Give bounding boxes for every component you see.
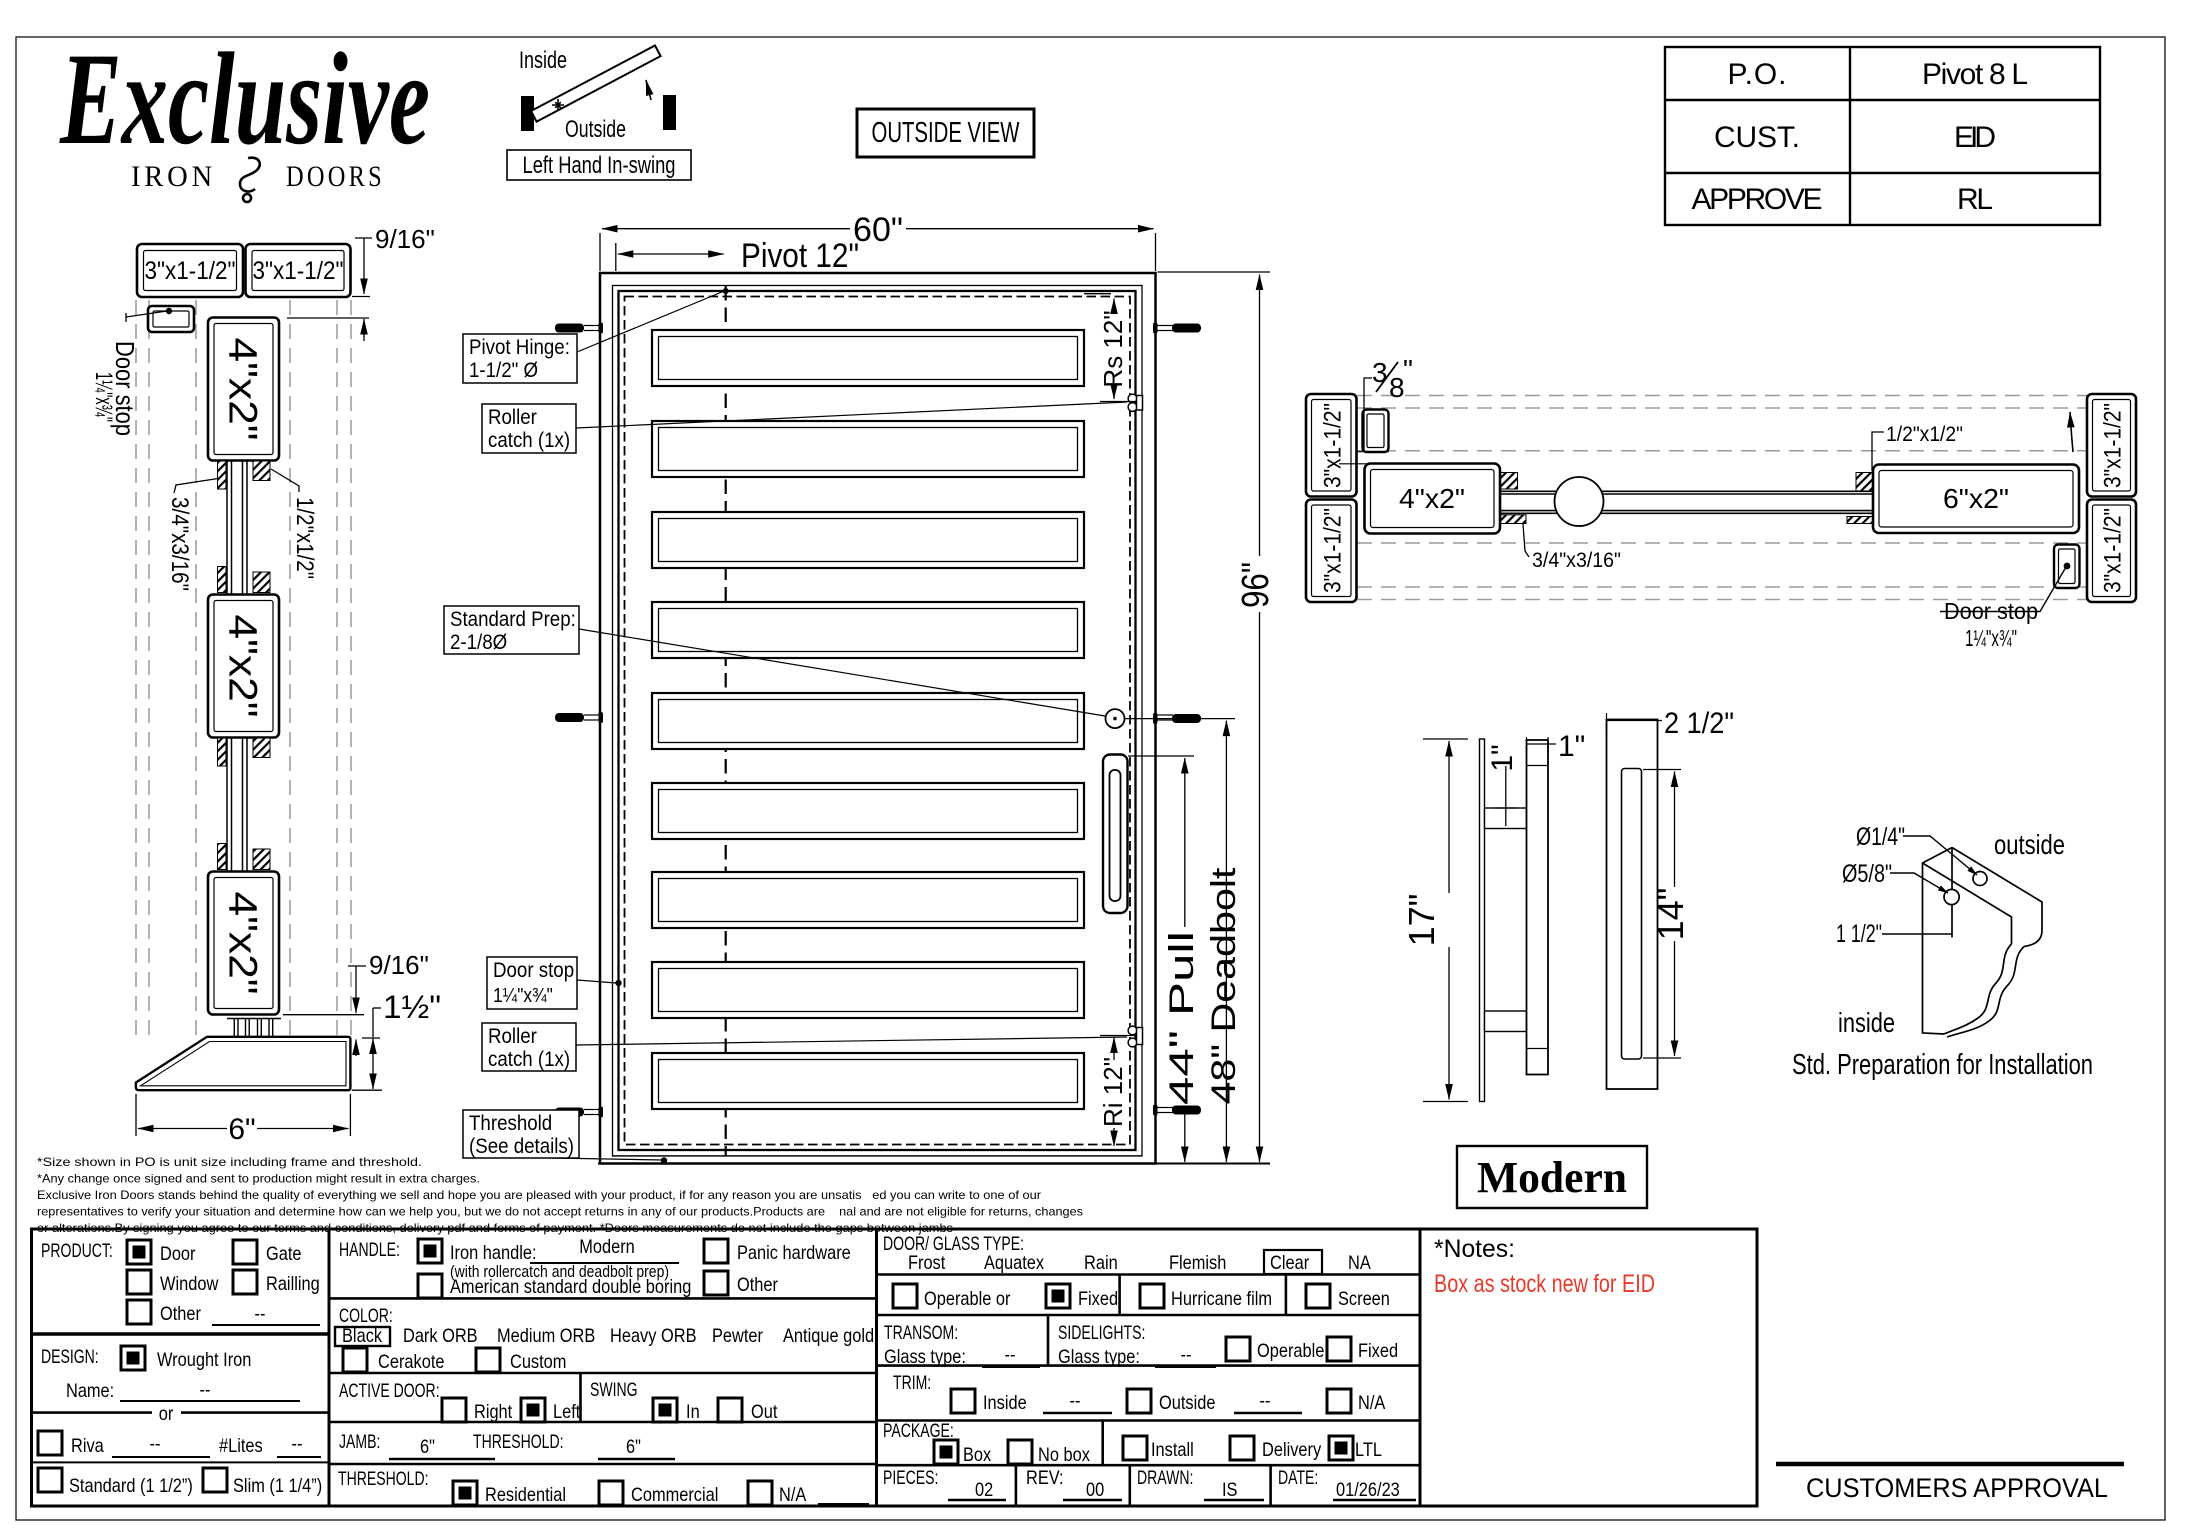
svg-text:6": 6" bbox=[228, 1113, 255, 1146]
svg-text:Black: Black bbox=[342, 1325, 382, 1347]
svg-text:": " bbox=[1403, 354, 1413, 385]
svg-text:Glass type:: Glass type: bbox=[884, 1346, 966, 1368]
svg-text:Heavy ORB: Heavy ORB bbox=[610, 1325, 697, 1347]
svg-text:3"x1-1/2": 3"x1-1/2" bbox=[1320, 403, 1347, 488]
svg-text:1½": 1½" bbox=[383, 989, 441, 1025]
svg-text:THRESHOLD:: THRESHOLD: bbox=[338, 1468, 429, 1490]
svg-text:Window: Window bbox=[160, 1273, 219, 1295]
svg-text:Modern: Modern bbox=[1477, 1153, 1627, 1202]
svg-text:APPROVE: APPROVE bbox=[1692, 183, 1823, 216]
svg-text:outside: outside bbox=[1994, 829, 2065, 860]
svg-text:HANDLE:: HANDLE: bbox=[339, 1239, 400, 1261]
svg-text:Std. Preparation for Installat: Std. Preparation for Installation bbox=[1792, 1049, 2093, 1081]
svg-text:4"x2": 4"x2" bbox=[221, 892, 265, 995]
svg-text:Pivot 12": Pivot 12" bbox=[741, 237, 859, 275]
svg-text:96": 96" bbox=[1235, 562, 1277, 608]
svg-text:Glass type:: Glass type: bbox=[1058, 1346, 1140, 1368]
svg-text:17": 17" bbox=[1401, 894, 1442, 947]
svg-text:Door stop: Door stop bbox=[1944, 598, 2038, 624]
svg-text:Door stop: Door stop bbox=[493, 958, 574, 982]
svg-text:3"x1-1/2": 3"x1-1/2" bbox=[2100, 403, 2127, 488]
svg-text:Flemish: Flemish bbox=[1169, 1252, 1226, 1274]
svg-text:Left Hand In-swing: Left Hand In-swing bbox=[523, 152, 676, 179]
svg-text:Exclusive: Exclusive bbox=[59, 25, 430, 172]
svg-text:Riva: Riva bbox=[71, 1435, 104, 1457]
svg-text:3: 3 bbox=[1372, 357, 1388, 388]
svg-text:DESIGN:: DESIGN: bbox=[41, 1346, 99, 1368]
svg-text:9/16": 9/16" bbox=[369, 950, 429, 980]
svg-text:EID: EID bbox=[1954, 121, 1996, 154]
svg-text:Door: Door bbox=[160, 1243, 196, 1265]
svg-text:3"x1-1/2": 3"x1-1/2" bbox=[145, 257, 236, 285]
svg-text:1/2"x1/2": 1/2"x1/2" bbox=[291, 497, 318, 579]
svg-text:9/16": 9/16" bbox=[375, 224, 435, 254]
svg-text:*Size shown in PO is unit size: *Size shown in PO is unit size including… bbox=[37, 1155, 422, 1169]
svg-text:Other: Other bbox=[737, 1274, 778, 1296]
svg-text:Ø5/8": Ø5/8" bbox=[1842, 860, 1892, 888]
svg-text:Panic hardware: Panic hardware bbox=[737, 1242, 851, 1264]
svg-text:--: -- bbox=[1181, 1344, 1192, 1366]
svg-text:IS: IS bbox=[1222, 1479, 1238, 1501]
svg-text:1 1/2": 1 1/2" bbox=[1836, 920, 1882, 948]
svg-text:inside: inside bbox=[1838, 1007, 1895, 1038]
svg-text:In: In bbox=[686, 1401, 700, 1423]
svg-text:4"x2": 4"x2" bbox=[1399, 483, 1465, 514]
svg-text:Hurricane film: Hurricane film bbox=[1171, 1288, 1272, 1310]
svg-text:RL: RL bbox=[1957, 183, 1993, 216]
svg-text:48" Deadbolt: 48" Deadbolt bbox=[1205, 867, 1243, 1105]
svg-text:3/4"x3/16": 3/4"x3/16" bbox=[1532, 549, 1621, 572]
svg-text:--: -- bbox=[1070, 1390, 1081, 1412]
svg-text:Install: Install bbox=[1151, 1439, 1194, 1461]
svg-text:00: 00 bbox=[1086, 1479, 1104, 1501]
svg-text:Threshold: Threshold bbox=[469, 1111, 552, 1135]
svg-text:TRIM:: TRIM: bbox=[893, 1372, 931, 1394]
svg-text:Right: Right bbox=[474, 1401, 513, 1423]
svg-text:Box as stock new for EID: Box as stock new for EID bbox=[1434, 1270, 1655, 1298]
svg-text:--: -- bbox=[292, 1433, 303, 1455]
svg-text:PIECES:: PIECES: bbox=[883, 1467, 938, 1489]
svg-text:6"x2": 6"x2" bbox=[1943, 483, 2009, 514]
svg-text:Standard Prep:: Standard Prep: bbox=[450, 607, 576, 631]
svg-text:Fixed: Fixed bbox=[1078, 1288, 1118, 1310]
svg-text:3"x1-1/2": 3"x1-1/2" bbox=[1320, 508, 1347, 593]
svg-text:01/26/23: 01/26/23 bbox=[1336, 1479, 1400, 1501]
svg-text:1¼"x¾": 1¼"x¾" bbox=[90, 372, 117, 422]
svg-text:Fixed: Fixed bbox=[1358, 1340, 1398, 1362]
svg-text:14": 14" bbox=[1650, 888, 1691, 941]
svg-text:Outside: Outside bbox=[1159, 1392, 1216, 1414]
svg-text:2-1/8Ø: 2-1/8Ø bbox=[450, 630, 507, 654]
svg-text:Modern: Modern bbox=[579, 1236, 635, 1258]
svg-text:1¼"x¾": 1¼"x¾" bbox=[493, 985, 553, 1007]
svg-text:Roller: Roller bbox=[488, 405, 537, 429]
svg-text:--: -- bbox=[1260, 1390, 1271, 1412]
svg-text:4"x2": 4"x2" bbox=[221, 615, 265, 718]
svg-text:Box: Box bbox=[963, 1444, 991, 1466]
svg-text:CUST.: CUST. bbox=[1714, 121, 1800, 154]
svg-text:American standard double borin: American standard double boring bbox=[450, 1276, 691, 1298]
svg-text:Pivot 8 L: Pivot 8 L bbox=[1922, 58, 2028, 91]
svg-text:Outside: Outside bbox=[565, 116, 626, 143]
svg-text:IRON: IRON bbox=[131, 160, 216, 193]
svg-text:--: -- bbox=[150, 1433, 161, 1455]
svg-text:Iron handle:: Iron handle: bbox=[450, 1242, 537, 1264]
svg-text:Screen: Screen bbox=[1338, 1288, 1390, 1310]
svg-text:Custom: Custom bbox=[510, 1351, 566, 1373]
svg-text:--: -- bbox=[200, 1379, 211, 1401]
svg-text:Rs 12": Rs 12" bbox=[1098, 310, 1128, 387]
svg-text:DRAWN:: DRAWN: bbox=[1137, 1467, 1193, 1489]
svg-text:--: -- bbox=[1005, 1344, 1016, 1366]
svg-text:P.O.: P.O. bbox=[1728, 58, 1787, 91]
svg-text:COLOR:: COLOR: bbox=[339, 1305, 393, 1327]
svg-text:Antique gold: Antique gold bbox=[783, 1325, 874, 1347]
svg-text:Ri 12": Ri 12" bbox=[1098, 1057, 1128, 1127]
svg-text:6": 6" bbox=[420, 1436, 435, 1458]
svg-text:#Lites: #Lites bbox=[219, 1435, 263, 1457]
svg-text:*Notes:: *Notes: bbox=[1434, 1235, 1515, 1263]
svg-text:DATE:: DATE: bbox=[1278, 1467, 1318, 1489]
svg-text:1": 1" bbox=[1558, 730, 1585, 763]
svg-text:02: 02 bbox=[975, 1479, 993, 1501]
svg-text:1-1/2" Ø: 1-1/2" Ø bbox=[469, 358, 538, 382]
svg-text:Operable: Operable bbox=[1257, 1340, 1324, 1362]
svg-text:(See details): (See details) bbox=[469, 1134, 574, 1158]
svg-text:SIDELIGHTS:: SIDELIGHTS: bbox=[1058, 1322, 1145, 1344]
svg-text:Medium ORB: Medium ORB bbox=[497, 1325, 595, 1347]
svg-text:Operable or: Operable or bbox=[924, 1288, 1011, 1310]
svg-text:CUSTOMERS APPROVAL: CUSTOMERS APPROVAL bbox=[1806, 1473, 2108, 1503]
svg-text:LTL: LTL bbox=[1355, 1439, 1382, 1461]
svg-text:SWING: SWING bbox=[590, 1379, 638, 1401]
svg-text:THRESHOLD:: THRESHOLD: bbox=[473, 1431, 564, 1453]
svg-text:Name:: Name: bbox=[66, 1380, 114, 1402]
svg-text:Pivot Hinge:: Pivot Hinge: bbox=[469, 335, 570, 359]
svg-text:JAMB:: JAMB: bbox=[339, 1431, 380, 1453]
svg-text:REV:: REV: bbox=[1026, 1467, 1064, 1489]
svg-text:catch (1x): catch (1x) bbox=[488, 1047, 570, 1071]
svg-text:1/2"x1/2": 1/2"x1/2" bbox=[1886, 423, 1963, 446]
svg-text:Frost: Frost bbox=[908, 1252, 946, 1274]
svg-text:Slim (1 1/4”): Slim (1 1/4”) bbox=[233, 1475, 322, 1497]
svg-text:Aquatex: Aquatex bbox=[984, 1252, 1044, 1274]
svg-text:1": 1" bbox=[1486, 744, 1519, 771]
svg-text:1¼"x¾": 1¼"x¾" bbox=[1965, 625, 2017, 651]
svg-text:N/A: N/A bbox=[779, 1484, 806, 1506]
svg-text:Pewter: Pewter bbox=[712, 1325, 763, 1347]
svg-text:Clear: Clear bbox=[1270, 1252, 1310, 1274]
svg-text:catch (1x): catch (1x) bbox=[488, 428, 570, 452]
svg-text:*Any change once signed and se: *Any change once signed and sent to prod… bbox=[37, 1172, 480, 1186]
svg-text:Rain: Rain bbox=[1084, 1252, 1118, 1274]
svg-text:Left: Left bbox=[553, 1401, 581, 1423]
svg-text:representatives to verify your: representatives to verify your situation… bbox=[37, 1205, 1083, 1219]
svg-text:Exclusive Iron Doors stands be: Exclusive Iron Doors stands behind the q… bbox=[37, 1188, 1041, 1202]
svg-text:2 1/2": 2 1/2" bbox=[1664, 707, 1734, 740]
svg-text:Inside: Inside bbox=[519, 47, 567, 74]
svg-text:Inside: Inside bbox=[983, 1392, 1027, 1414]
svg-text:Cerakote: Cerakote bbox=[378, 1351, 445, 1373]
svg-text:Delivery: Delivery bbox=[1262, 1439, 1321, 1461]
svg-text:3"x1-1/2": 3"x1-1/2" bbox=[2100, 508, 2127, 593]
svg-text:Railling: Railling bbox=[266, 1273, 320, 1295]
svg-text:6": 6" bbox=[626, 1436, 641, 1458]
svg-text:Standard (1 1/2”): Standard (1 1/2”) bbox=[69, 1475, 193, 1497]
svg-text:Ø1/4": Ø1/4" bbox=[1856, 823, 1905, 851]
svg-text:--: -- bbox=[255, 1303, 266, 1325]
svg-text:Commercial: Commercial bbox=[631, 1484, 718, 1506]
svg-text:Roller: Roller bbox=[488, 1024, 537, 1048]
svg-text:3"x1-1/2": 3"x1-1/2" bbox=[253, 257, 344, 285]
svg-text:OUTSIDE VIEW: OUTSIDE VIEW bbox=[872, 117, 1020, 149]
svg-text:PRODUCT:: PRODUCT: bbox=[41, 1240, 113, 1262]
svg-text:DOORS: DOORS bbox=[286, 160, 385, 193]
svg-text:3/4"x3/16": 3/4"x3/16" bbox=[166, 497, 193, 591]
svg-text:ACTIVE DOOR:: ACTIVE DOOR: bbox=[339, 1380, 440, 1402]
svg-text:Gate: Gate bbox=[266, 1243, 302, 1265]
svg-text:No box: No box bbox=[1038, 1444, 1090, 1466]
svg-text:Wrought Iron: Wrought Iron bbox=[157, 1349, 251, 1371]
svg-text:TRANSOM:: TRANSOM: bbox=[884, 1322, 958, 1344]
svg-text:44" Pull: 44" Pull bbox=[1163, 931, 1201, 1105]
svg-text:Dark ORB: Dark ORB bbox=[403, 1325, 478, 1347]
svg-text:Out: Out bbox=[751, 1401, 778, 1423]
svg-text:Other: Other bbox=[160, 1303, 201, 1325]
svg-text:or: or bbox=[159, 1403, 174, 1425]
svg-text:Residential: Residential bbox=[485, 1484, 566, 1506]
svg-text:N/A: N/A bbox=[1358, 1392, 1385, 1414]
svg-text:4"x2": 4"x2" bbox=[221, 338, 265, 441]
svg-text:NA: NA bbox=[1348, 1252, 1371, 1274]
svg-text:60": 60" bbox=[853, 211, 903, 249]
